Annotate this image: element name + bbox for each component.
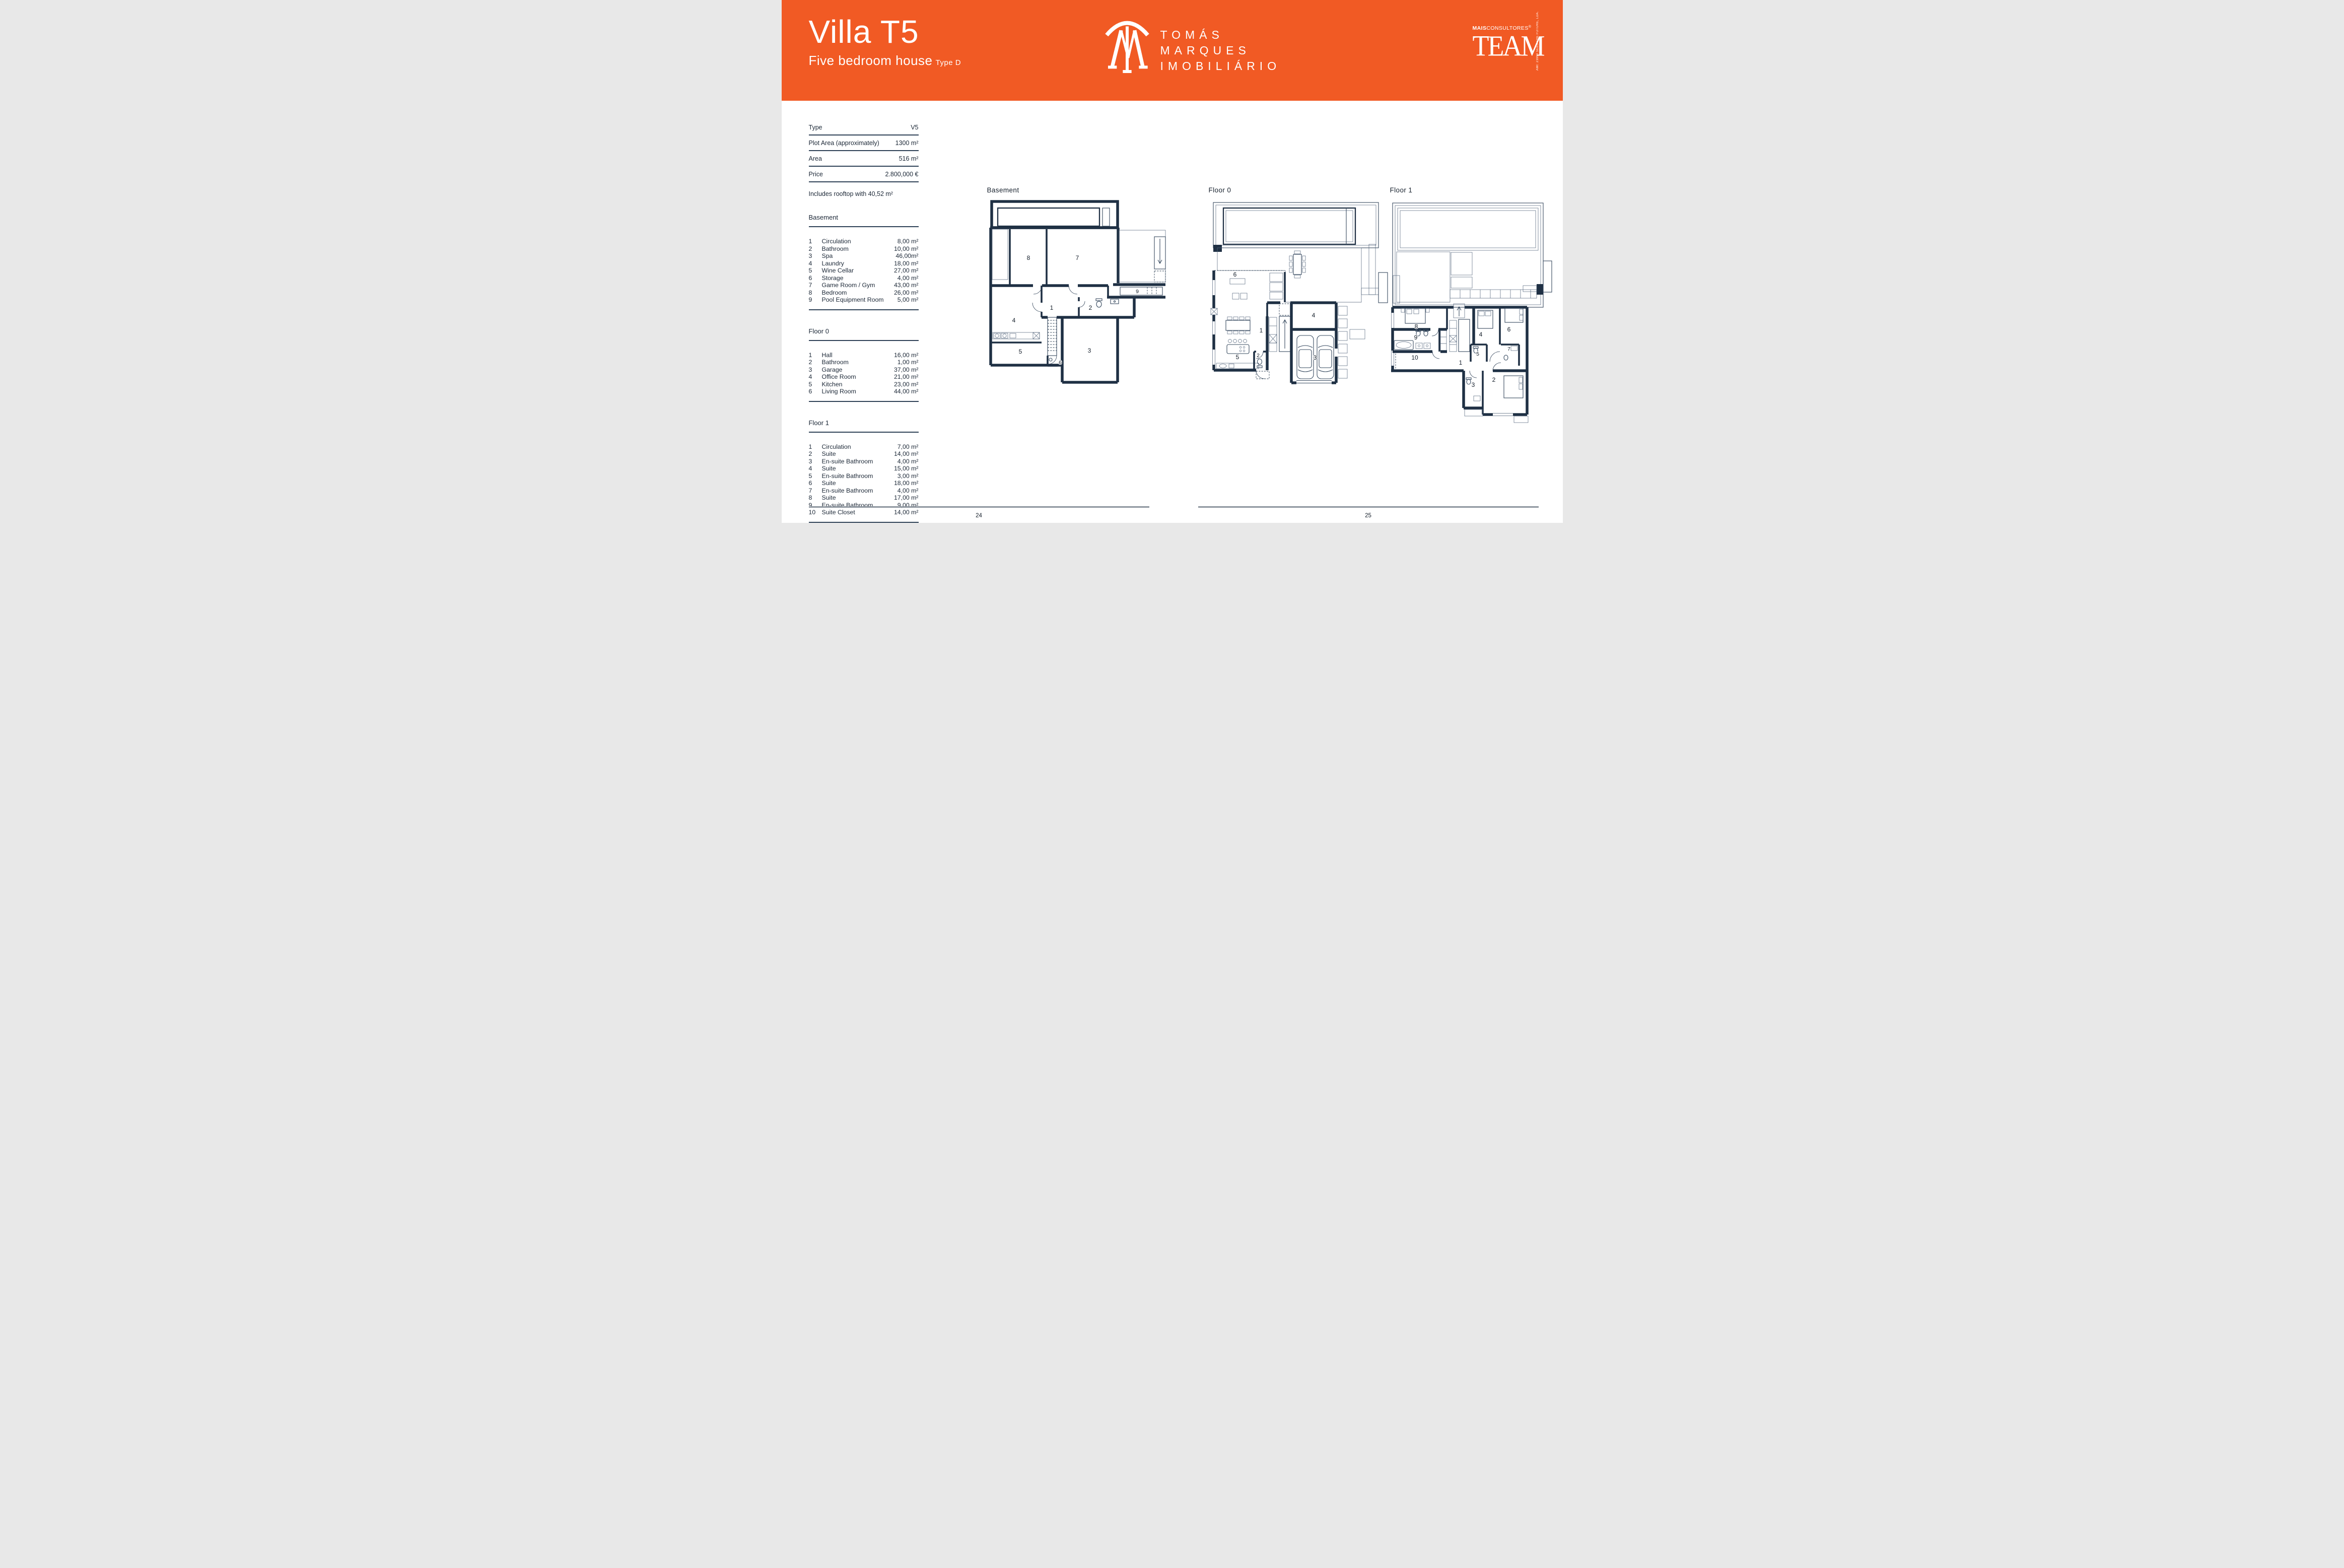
room-row: 7Game Room / Gym43,00 m² xyxy=(809,282,919,289)
floorplan-floor0: 6 4 1 2 5 3 xyxy=(1204,199,1390,425)
room-row: 6Suite18,00 m² xyxy=(809,480,919,487)
spec-row: Plot Area (approximately)1300 m² xyxy=(809,135,919,151)
section-divider xyxy=(809,309,919,310)
room-number-label: 2 xyxy=(1492,376,1495,383)
room-number-label: 6 xyxy=(1507,326,1510,333)
room-number-label: 1 xyxy=(1259,327,1263,334)
room-number-label: 3 xyxy=(1087,347,1091,354)
room-row: 3Garage37,00 m² xyxy=(809,367,919,373)
room-row: 2Suite14,00 m² xyxy=(809,451,919,457)
room-row: 1Hall16,00 m² xyxy=(809,352,919,359)
room-section: Basement 1Circulation8,00 m²2Bathroom10,… xyxy=(809,214,919,310)
room-row: 8Bedroom26,00 m² xyxy=(809,290,919,296)
footer-rule-left xyxy=(809,506,1149,508)
room-number-label: 10 xyxy=(1411,354,1418,361)
left-column: TypeV5Plot Area (approximately)1300 m²Ar… xyxy=(809,120,919,523)
room-row: 4Suite15,00 m² xyxy=(809,465,919,472)
room-number-label: 4 xyxy=(1012,317,1015,324)
room-row: 3En-suite Bathroom4,00 m² xyxy=(809,458,919,465)
partner-vertical-text: AMI: 23990 SEED THE FUTURE, LDA. xyxy=(1536,33,1539,71)
spec-row: TypeV5 xyxy=(809,120,919,135)
room-row: 5Wine Cellar27,00 m² xyxy=(809,267,919,274)
room-row: 5En-suite Bathroom3,00 m² xyxy=(809,473,919,480)
brochure-page: Villa T5 Five bedroom houseType D xyxy=(782,0,1563,523)
page-subtitle: Five bedroom houseType D xyxy=(809,53,961,69)
floorplan-floor1: 8 4 6 9 5 7 10 1 2 3 xyxy=(1384,199,1555,430)
partner-logo: MAISCONSULTORES® TEAM AMI: 23990 SEED TH… xyxy=(1473,25,1548,58)
plan-title-floor1: Floor 1 xyxy=(1390,186,1413,194)
plan-title-floor0: Floor 0 xyxy=(1209,186,1231,194)
specs-note: Includes rooftop with 40,52 m² xyxy=(809,190,919,197)
room-number-label: 6 xyxy=(1059,360,1062,366)
room-row: 1Circulation8,00 m² xyxy=(809,238,919,245)
room-row: 1Circulation7,00 m² xyxy=(809,444,919,450)
room-number-label: 5 xyxy=(1235,354,1239,361)
section-title: Floor 1 xyxy=(809,419,919,427)
room-row: 7En-suite Bathroom4,00 m² xyxy=(809,488,919,494)
room-number-label: 7 xyxy=(1075,254,1079,261)
room-row: 2Bathroom1,00 m² xyxy=(809,359,919,366)
room-row: 10Suite Closet14,00 m² xyxy=(809,509,919,516)
room-number-label: 3 xyxy=(1471,381,1475,388)
room-row: 9Pool Equipment Room5,00 m² xyxy=(809,297,919,303)
room-row: 9En-suite Bathroom9,00 m² xyxy=(809,502,919,509)
room-row: 3Spa46,00m² xyxy=(809,253,919,259)
footer-rule-right xyxy=(1198,506,1539,508)
room-row: 6Storage4,00 m² xyxy=(809,275,919,282)
page-title: Villa T5 xyxy=(809,15,961,49)
spec-row: Area516 m² xyxy=(809,151,919,167)
section-divider xyxy=(809,226,919,227)
room-row: 8Suite17,00 m² xyxy=(809,495,919,501)
spec-row: Price2.800,000 € xyxy=(809,167,919,182)
room-rows: 1Circulation7,00 m²2Suite14,00 m²3En-sui… xyxy=(809,444,919,516)
registered-mark: ® xyxy=(1529,25,1532,29)
room-row: 2Bathroom10,00 m² xyxy=(809,246,919,252)
tm-monogram-icon xyxy=(1102,13,1152,77)
subtitle-text: Five bedroom house xyxy=(809,53,933,68)
room-number-label: 6 xyxy=(1233,271,1236,278)
room-number-label: 2 xyxy=(1088,304,1092,311)
room-number-label: 5 xyxy=(1476,351,1479,357)
room-row: 4Office Room21,00 m² xyxy=(809,374,919,380)
plan-title-basement: Basement xyxy=(987,186,1019,194)
room-number-label: 9 xyxy=(1136,289,1139,295)
page-number-right: 25 xyxy=(1358,513,1378,519)
section-divider xyxy=(809,401,919,402)
header-band: Villa T5 Five bedroom houseType D xyxy=(782,0,1563,101)
brand-line-3: IMOBILIÁRIO xyxy=(1160,58,1281,74)
page-number-left: 24 xyxy=(969,513,989,519)
room-section: Floor 0 1Hall16,00 m²2Bathroom1,00 m²3Ga… xyxy=(809,327,919,402)
section-title: Basement xyxy=(809,214,919,221)
room-rows: 1Circulation8,00 m²2Bathroom10,00 m²3Spa… xyxy=(809,238,919,303)
room-row: 6Living Room44,00 m² xyxy=(809,388,919,395)
section-divider xyxy=(809,522,919,523)
floorplan-basement: 8 7 9 1 2 4 5 6 3 xyxy=(986,199,1168,387)
brand-wordmark: TOMÁS MARQUES IMOBILIÁRIO xyxy=(1160,27,1281,74)
room-number-label: 1 xyxy=(1459,359,1462,366)
section-divider xyxy=(809,432,919,433)
brand-line-1: TOMÁS xyxy=(1160,27,1281,43)
room-number-label: 7 xyxy=(1507,346,1510,352)
room-row: 5Kitchen23,00 m² xyxy=(809,381,919,388)
specs-table: TypeV5Plot Area (approximately)1300 m²Ar… xyxy=(809,120,919,182)
room-number-label: 4 xyxy=(1312,312,1315,319)
room-number-label: 8 xyxy=(1414,323,1418,330)
room-number-label: 3 xyxy=(1313,354,1317,361)
room-row: 4Laundry18,00 m² xyxy=(809,260,919,267)
section-title: Floor 0 xyxy=(809,327,919,335)
type-tag: Type D xyxy=(936,58,961,67)
room-number-label: 8 xyxy=(1026,254,1030,261)
brand-line-2: MARQUES xyxy=(1160,43,1281,58)
room-number-label: 1 xyxy=(1050,304,1053,311)
room-number-label: 9 xyxy=(1414,334,1417,341)
room-number-label: 2 xyxy=(1257,353,1260,359)
room-rows: 1Hall16,00 m²2Bathroom1,00 m²3Garage37,0… xyxy=(809,352,919,395)
room-number-label: 4 xyxy=(1479,331,1482,338)
room-number-label: 5 xyxy=(1018,348,1022,355)
section-divider xyxy=(809,340,919,341)
